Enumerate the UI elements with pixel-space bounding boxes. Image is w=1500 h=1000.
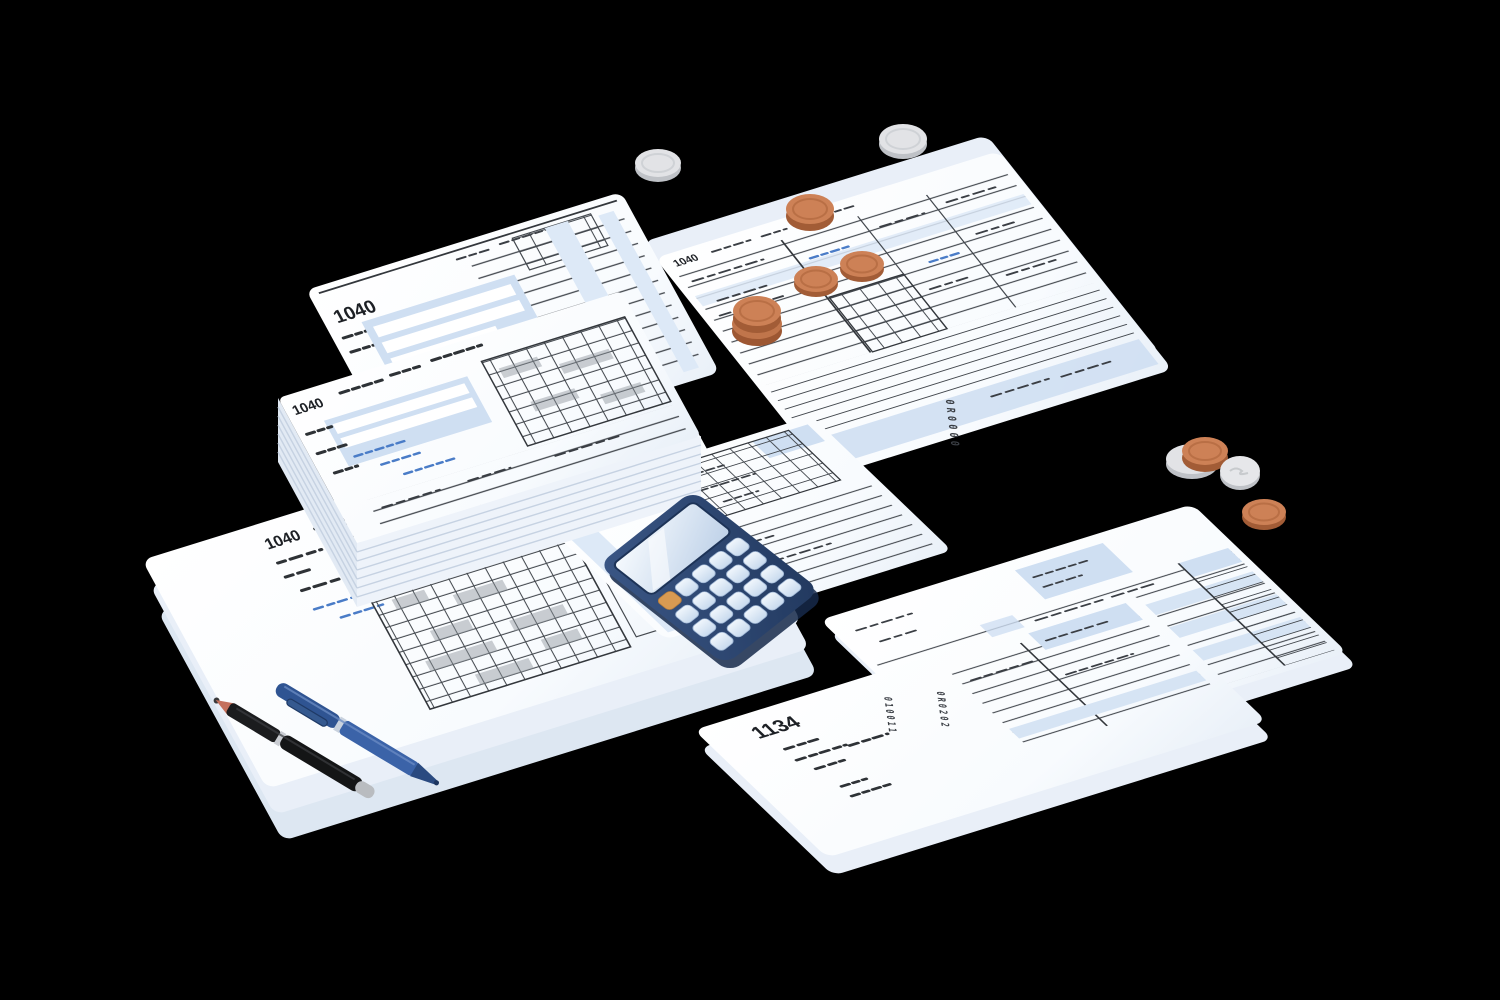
tax-forms-illustration: 1040 1040 [0, 0, 1500, 1000]
copper-coin [786, 194, 834, 231]
copper-coin [794, 266, 838, 297]
copper-coin-stack [732, 296, 782, 346]
silver-coin [1220, 456, 1260, 490]
copper-coin [1242, 499, 1286, 530]
silver-coin [879, 124, 927, 159]
copper-coin [840, 251, 884, 282]
silver-coin [635, 149, 681, 182]
illustration-canvas: 1040 1040 [0, 0, 1500, 1000]
